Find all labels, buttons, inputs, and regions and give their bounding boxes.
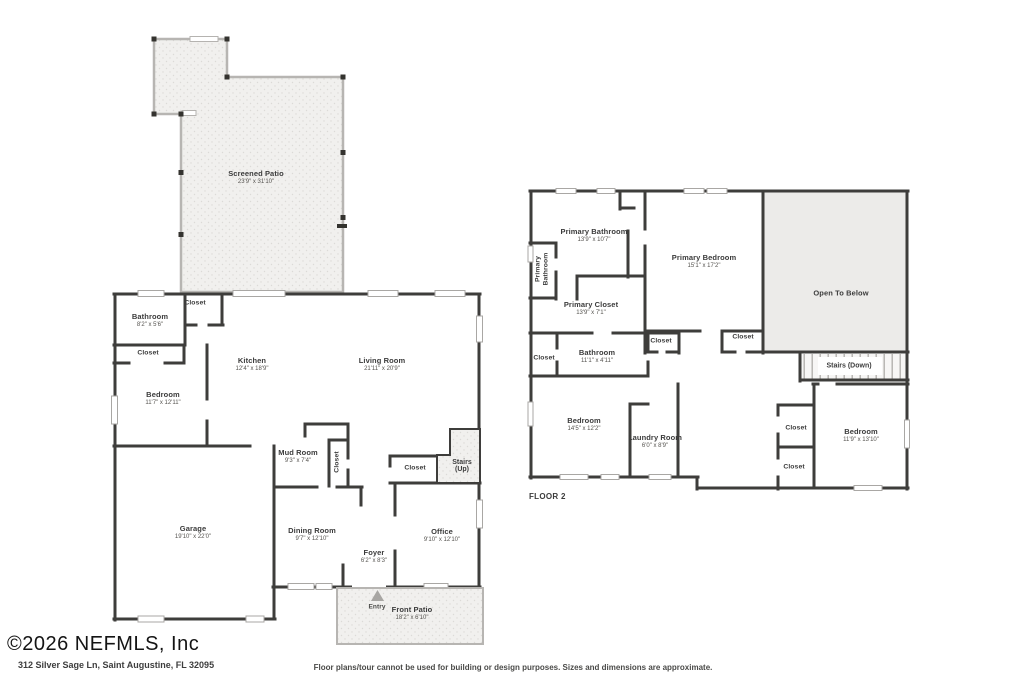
copyright-watermark: ©2026 NEFMLS, Inc: [7, 633, 199, 656]
front-patio-area: [337, 588, 483, 644]
floorplan-image: Screened Patio 23'9" x 31'10" Bathroom 8…: [0, 0, 1023, 682]
stairs-up-area: [437, 429, 480, 483]
floorplan-drawing: [0, 0, 1023, 682]
property-address: 312 Silver Sage Ln, Saint Augustine, FL …: [18, 660, 214, 670]
screened-patio-area: [154, 39, 343, 292]
floor1-walls: [114, 294, 480, 620]
floor2-tag: FLOOR 2: [529, 492, 566, 501]
floor2-plan: [528, 189, 910, 491]
open-to-below-area: [764, 192, 907, 352]
disclaimer-text: Floor plans/tour cannot be used for buil…: [314, 663, 713, 672]
floor1-plan: [112, 37, 484, 645]
